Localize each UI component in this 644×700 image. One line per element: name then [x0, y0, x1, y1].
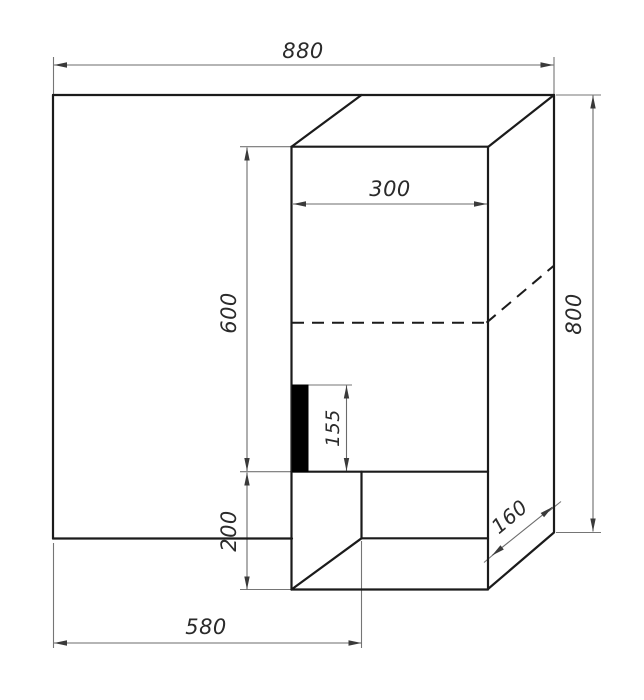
dim-label-580: 580	[185, 615, 227, 639]
object-line	[488, 533, 554, 590]
object-line	[292, 95, 362, 147]
dimension-arrow	[54, 62, 67, 67]
dimension-arrow	[541, 62, 554, 67]
dimension-lines-layer	[54, 62, 596, 645]
technical-drawing-svg: 880300600155200800580160	[0, 0, 644, 700]
dimension-arrow	[590, 519, 595, 532]
dimension-arrow	[244, 148, 249, 161]
dim-label-800: 800	[562, 293, 586, 335]
dimension-arrow	[349, 640, 362, 645]
dim-label-880: 880	[282, 39, 324, 63]
object-line	[488, 95, 554, 147]
dimension-arrow	[590, 96, 595, 109]
dimension-arrow	[244, 577, 249, 590]
dim-label-600: 600	[217, 292, 241, 334]
dim-label-155: 155	[322, 409, 344, 447]
dim-label-160: 160	[487, 495, 533, 539]
dimension-arrow	[244, 473, 249, 486]
dimension-arrow	[344, 458, 349, 471]
dimension-arrow	[54, 640, 67, 645]
dim-label-300: 300	[369, 177, 411, 201]
dimension-arrow	[474, 201, 487, 206]
black-panel-rect	[293, 385, 309, 472]
dimension-labels-layer: 880300600155200800580160	[185, 39, 586, 639]
object-lines-layer	[53, 95, 554, 590]
dimension-arrow	[244, 458, 249, 471]
drawing-canvas: 880300600155200800580160	[0, 0, 644, 700]
object-line	[292, 538, 362, 589]
dimension-arrow	[344, 386, 349, 399]
dimension-arrow	[293, 201, 306, 206]
dim-label-200: 200	[217, 510, 241, 552]
hidden-edge-dashed-line	[487, 266, 554, 323]
